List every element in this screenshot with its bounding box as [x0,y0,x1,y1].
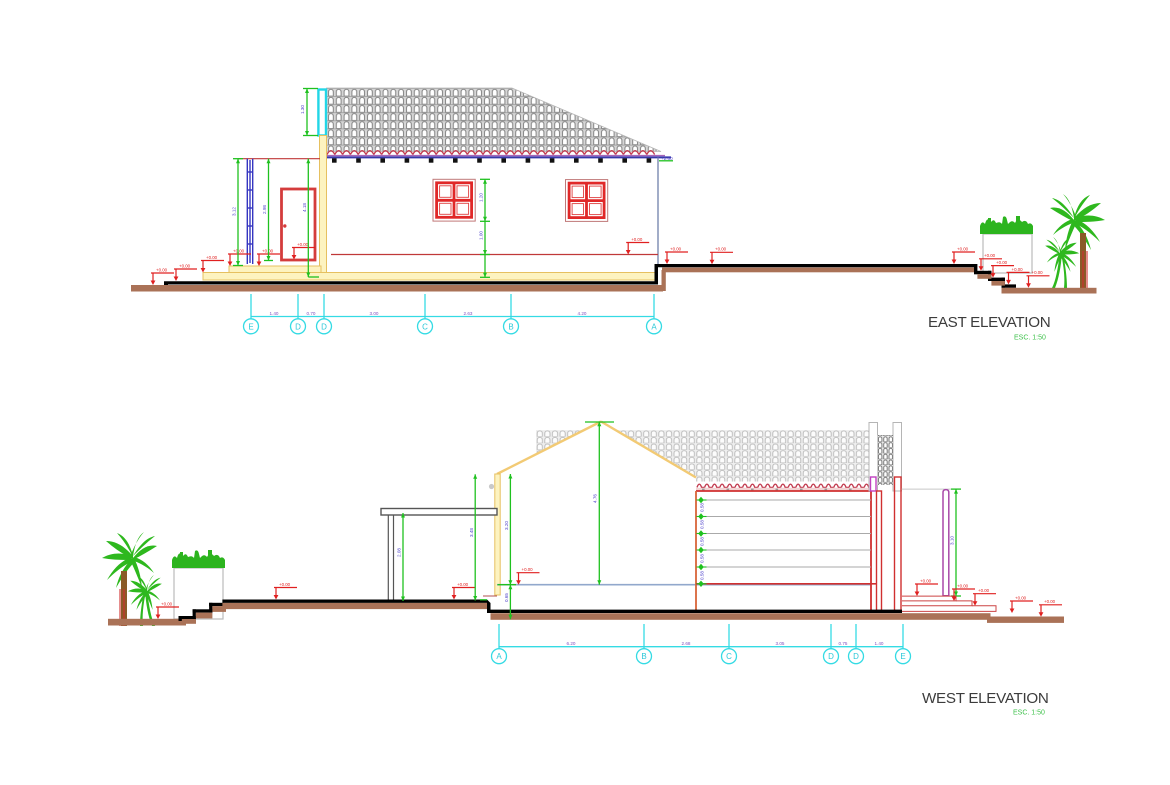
svg-text:1.00: 1.00 [479,231,484,240]
svg-text:0.58: 0.58 [700,503,705,512]
svg-text:0.75: 0.75 [839,641,848,646]
svg-text:B: B [508,322,513,331]
svg-text:E: E [248,322,253,331]
svg-text:ESC. 1:50: ESC. 1:50 [1014,335,1046,342]
svg-text:2.68: 2.68 [682,641,691,646]
svg-text:3.05: 3.05 [776,641,785,646]
svg-text:4.18: 4.18 [302,203,307,212]
svg-text:3.12: 3.12 [232,207,237,216]
svg-text:1.20: 1.20 [479,193,484,202]
svg-text:2.63: 2.63 [464,311,473,316]
svg-text:0.58: 0.58 [700,520,705,529]
svg-text:D: D [853,652,859,661]
svg-text:0.58: 0.58 [700,571,705,580]
svg-text:6.20: 6.20 [567,641,576,646]
svg-text:1.40: 1.40 [875,641,884,646]
svg-text:3.20: 3.20 [504,521,509,530]
svg-text:E: E [900,652,905,661]
svg-text:D: D [321,322,327,331]
svg-text:0.58: 0.58 [700,537,705,546]
svg-text:A: A [651,322,657,331]
svg-text:4.76: 4.76 [593,494,598,503]
svg-text:0.58: 0.58 [700,554,705,563]
svg-text:B: B [641,652,646,661]
svg-text:2.08: 2.08 [397,548,402,557]
svg-text:ESC. 1:50: ESC. 1:50 [1013,710,1045,717]
svg-text:4.20: 4.20 [578,311,587,316]
svg-text:A: A [496,652,502,661]
svg-text:1.30: 1.30 [300,105,305,114]
svg-text:2.98: 2.98 [262,205,267,214]
svg-text:0.65: 0.65 [504,593,509,602]
svg-text:WEST ELEVATION: WEST ELEVATION [922,690,1049,707]
svg-text:C: C [726,652,732,661]
svg-text:3.10: 3.10 [949,536,954,545]
svg-text:0.70: 0.70 [307,311,316,316]
svg-text:EAST ELEVATION: EAST ELEVATION [928,314,1050,331]
svg-text:3.48: 3.48 [469,528,474,537]
svg-text:1.40: 1.40 [270,311,279,316]
svg-text:3.00: 3.00 [370,311,379,316]
svg-text:+2.60: +2.60 [661,156,673,161]
svg-text:D: D [828,652,834,661]
svg-text:C: C [422,322,428,331]
svg-text:D: D [295,322,301,331]
